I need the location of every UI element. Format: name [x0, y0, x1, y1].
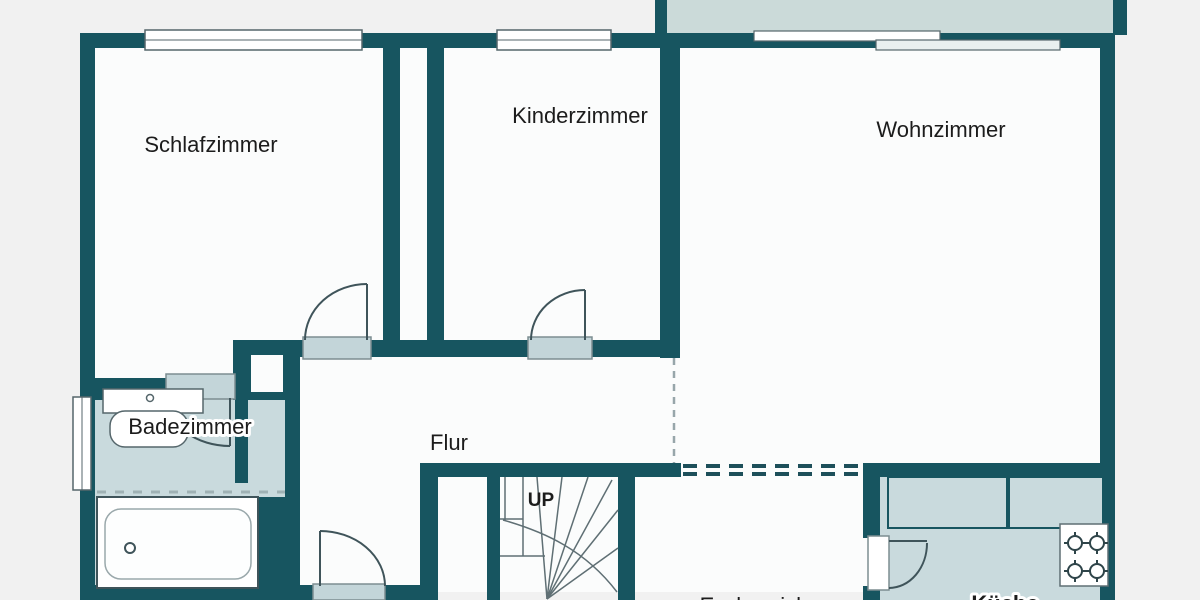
label-schlafzimmer: Schlafzimmer — [144, 132, 277, 157]
wall-stairs-closet — [487, 477, 500, 600]
balcony-wall-right — [1113, 0, 1127, 35]
bathtub — [97, 497, 258, 588]
threshold-kinderzimmer-door — [528, 337, 592, 359]
threshold-schlafzimmer-door — [303, 337, 371, 359]
floor-plan-drawing: Schlafzimmer Kinderzimmer Wohnzimmer Bad… — [0, 0, 1200, 600]
bathtub-drain — [125, 543, 135, 553]
wall-kitchen-top — [866, 463, 1115, 477]
wall-kitchen-left-upper — [863, 463, 880, 538]
wall-wohnzimmer-left — [660, 46, 680, 358]
wall-stairs-left — [420, 463, 438, 600]
label-essbereich: Essbereich — [700, 593, 809, 600]
washbasin-faucet — [147, 395, 154, 402]
window-schlafzimmer — [145, 30, 362, 50]
label-wohnzimmer: Wohnzimmer — [876, 117, 1005, 142]
label-kueche: Küche — [971, 591, 1038, 600]
kitchen-counter-right — [1009, 477, 1103, 528]
kitchen-counter-left — [888, 477, 1007, 528]
balcony-floor — [667, 0, 1120, 35]
threshold-kueche-door — [868, 536, 889, 590]
wall-schlafzimmer-right — [383, 46, 400, 342]
threshold-entrance-door — [313, 584, 385, 600]
label-stairs-up: UP — [528, 490, 555, 511]
wall-stairs-top — [438, 463, 681, 477]
window-badezimmer — [73, 397, 91, 490]
window-kinderzimmer — [497, 30, 611, 50]
wall-kinderzimmer-left — [427, 46, 444, 342]
balcony — [655, 0, 1127, 35]
wall-exterior-left — [80, 33, 95, 600]
label-kinderzimmer: Kinderzimmer — [512, 103, 648, 128]
label-flur: Flur — [430, 430, 468, 455]
stove — [1060, 524, 1108, 586]
balcony-wall-left — [655, 0, 667, 35]
label-badezimmer: Badezimmer — [128, 414, 251, 439]
floor-plan-canvas: Schlafzimmer Kinderzimmer Wohnzimmer Bad… — [0, 0, 1200, 600]
wall-bathtub-right — [258, 497, 300, 590]
wall-bathroom-divider — [235, 398, 248, 483]
shaft-opening — [251, 355, 283, 392]
wall-stairs-right — [618, 463, 635, 600]
